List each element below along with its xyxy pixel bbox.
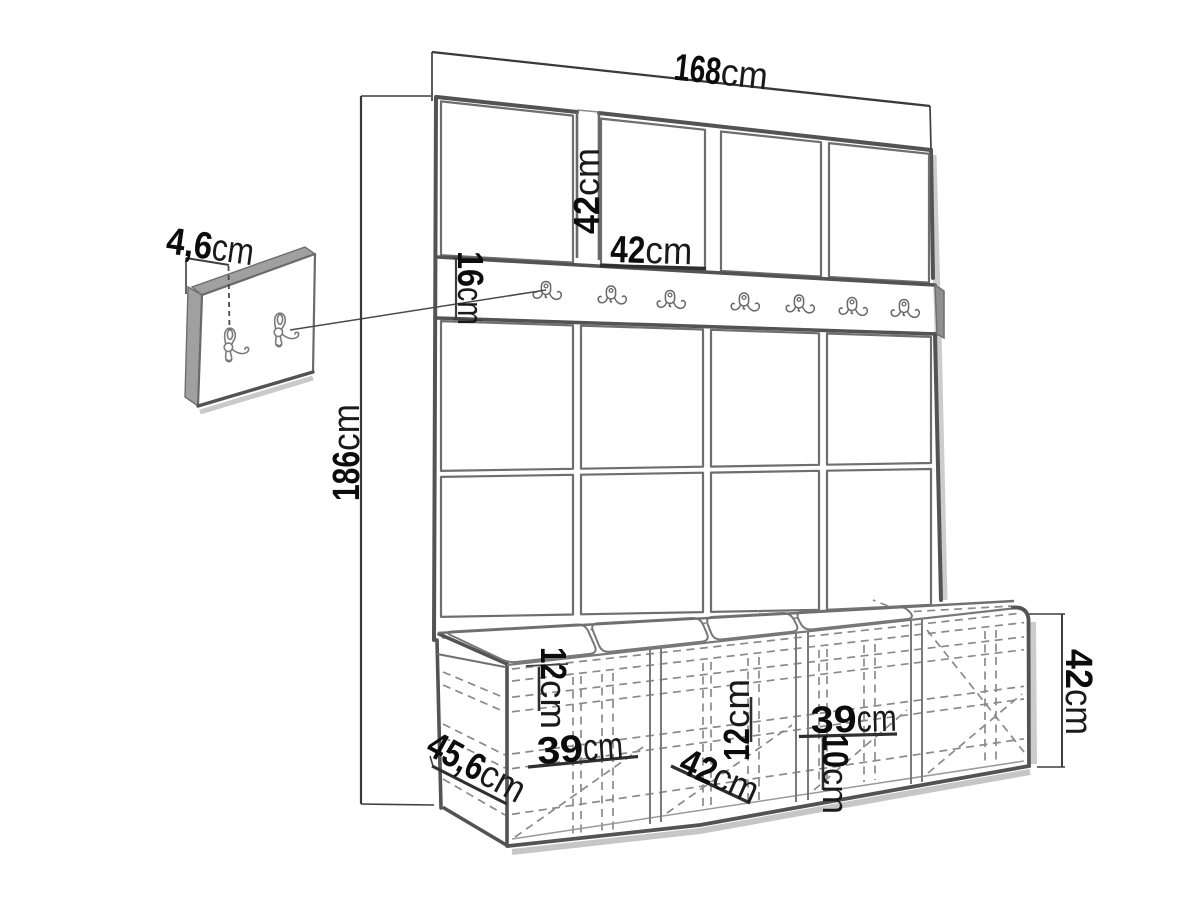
svg-text:10cm: 10cm: [815, 734, 856, 814]
svg-text:16cm: 16cm: [450, 251, 491, 325]
svg-text:39cm: 39cm: [536, 725, 625, 773]
svg-text:186cm: 186cm: [326, 404, 368, 501]
svg-text:42cm: 42cm: [566, 148, 607, 234]
svg-text:12cm: 12cm: [533, 647, 574, 729]
svg-text:42cm: 42cm: [610, 229, 693, 273]
svg-text:12cm: 12cm: [716, 679, 757, 761]
svg-text:42cm: 42cm: [1057, 649, 1099, 735]
